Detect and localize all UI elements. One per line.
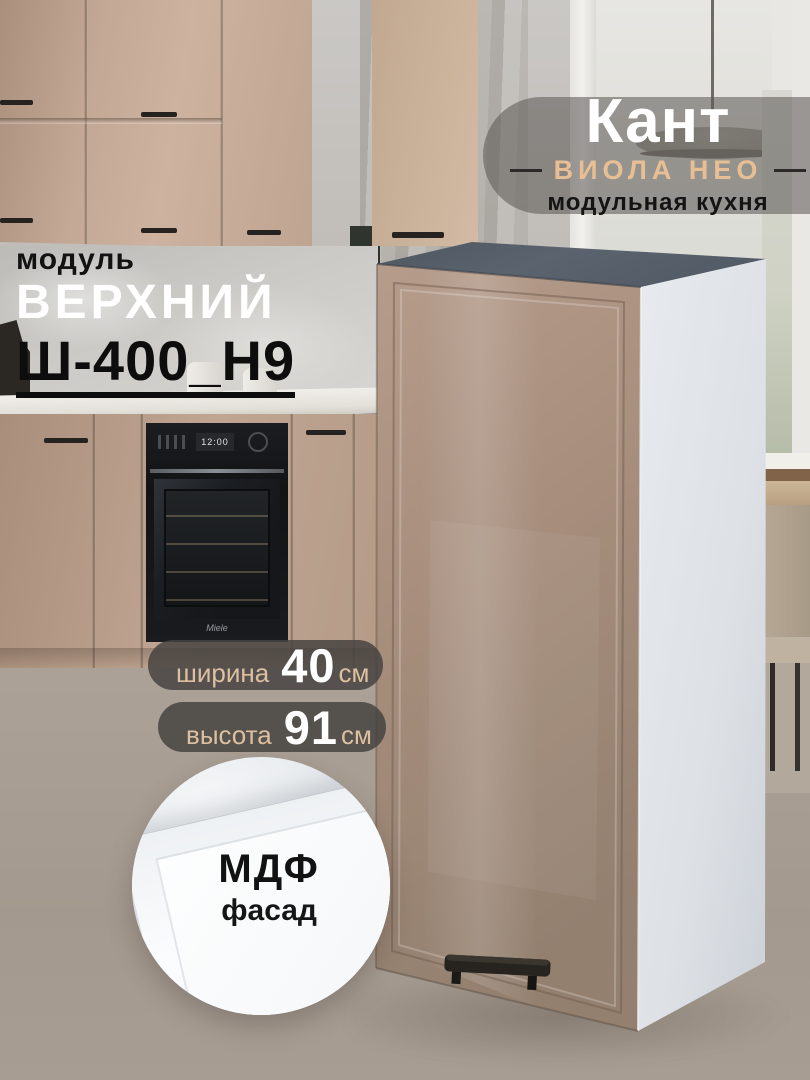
- product-card: 12:00 Miele: [0, 0, 810, 1080]
- material-detail-circle: МДФ фасад: [132, 757, 390, 1015]
- width-unit: см: [338, 658, 369, 689]
- height-label: высота: [186, 720, 272, 751]
- module-code: Ш-400_Н9: [16, 333, 295, 398]
- brand-name: Кант: [586, 94, 731, 150]
- material-subtitle: фасад: [218, 894, 319, 928]
- height-unit: см: [341, 720, 372, 751]
- material-title: МДФ: [218, 847, 319, 892]
- width-label: ширина: [176, 658, 269, 689]
- width-value: 40: [281, 638, 335, 693]
- series-row: ВИОЛА НЕО: [510, 155, 807, 186]
- width-badge: ширина 40 см: [148, 640, 383, 690]
- dash-line: [774, 169, 806, 172]
- brand-header: Кант ВИОЛА НЕО модульная кухня: [483, 97, 810, 214]
- cabinet-side-panel: [638, 259, 766, 1031]
- module-title: ВЕРХНИЙ: [16, 279, 295, 328]
- height-value: 91: [284, 700, 338, 755]
- width-badge-row: ширина 40 см: [176, 638, 369, 693]
- height-badge: высота 91 см: [158, 702, 386, 752]
- module-title-block: модуль ВЕРХНИЙ Ш-400_Н9: [16, 243, 295, 398]
- brand-tagline: модульная кухня: [547, 189, 768, 217]
- material-label: МДФ фасад: [218, 847, 319, 928]
- dash-line: [510, 169, 542, 172]
- facade-gloss-reflection: [428, 520, 600, 900]
- height-badge-row: высота 91 см: [186, 700, 372, 755]
- series-name: ВИОЛА НЕО: [554, 155, 763, 186]
- module-kicker: модуль: [16, 243, 295, 277]
